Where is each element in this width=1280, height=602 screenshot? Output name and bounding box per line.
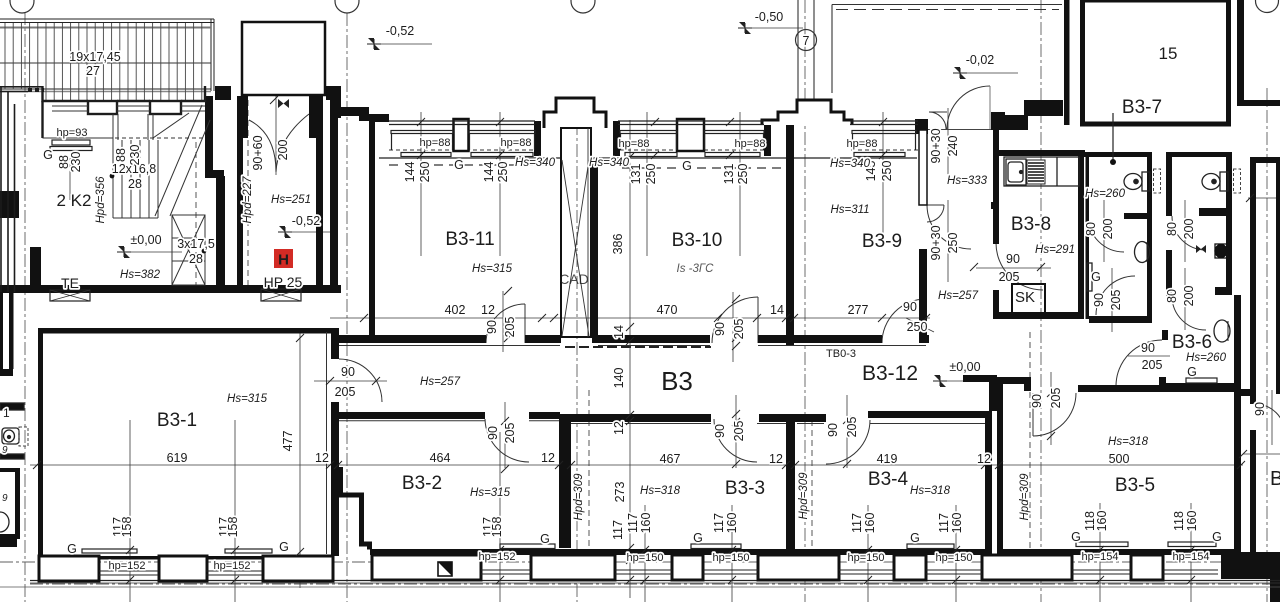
svg-text:205: 205: [1142, 358, 1163, 372]
svg-text:TB0-3: TB0-3: [826, 348, 856, 360]
svg-text:H: H: [278, 252, 289, 269]
svg-text:-0,52: -0,52: [292, 214, 321, 228]
svg-text:28: 28: [128, 177, 142, 191]
svg-text:250: 250: [946, 233, 960, 254]
svg-text:hp=93: hp=93: [57, 127, 88, 139]
svg-text:12: 12: [612, 421, 626, 435]
svg-text:90: 90: [1006, 252, 1020, 266]
svg-text:±0,00: ±0,00: [130, 233, 161, 247]
svg-text:12: 12: [541, 451, 555, 465]
svg-text:B3-7: B3-7: [1122, 97, 1162, 118]
svg-text:250: 250: [907, 320, 928, 334]
svg-text:hp=88: hp=88: [501, 137, 532, 149]
svg-text:9: 9: [2, 493, 8, 504]
svg-text:Hpd=309: Hpd=309: [798, 472, 810, 520]
svg-text:402: 402: [445, 303, 466, 317]
svg-text:14: 14: [770, 303, 784, 317]
svg-text:Hs=333: Hs=333: [947, 175, 988, 187]
svg-text:277: 277: [848, 303, 869, 317]
svg-text:hp=152: hp=152: [213, 560, 250, 572]
svg-text:12: 12: [977, 452, 991, 466]
svg-text:90: 90: [486, 426, 500, 440]
svg-text:273: 273: [613, 482, 627, 503]
svg-text:12: 12: [769, 452, 783, 466]
svg-text:B3: B3: [661, 366, 693, 396]
svg-text:Hs=318: Hs=318: [910, 485, 951, 497]
svg-text:230: 230: [69, 152, 83, 173]
svg-text:205: 205: [1049, 388, 1063, 409]
svg-text:90+30: 90+30: [929, 225, 943, 260]
svg-text:hp=88: hp=88: [619, 138, 650, 150]
svg-text:B3-10: B3-10: [672, 230, 723, 251]
svg-text:90: 90: [713, 424, 727, 438]
svg-text:160: 160: [1185, 511, 1199, 532]
svg-text:90: 90: [826, 423, 840, 437]
svg-text:Hpd=309: Hpd=309: [1019, 473, 1031, 521]
svg-text:250: 250: [644, 164, 658, 185]
svg-text:Hs=315: Hs=315: [470, 487, 511, 499]
svg-text:Hs=260: Hs=260: [1085, 188, 1126, 200]
svg-text:117: 117: [611, 520, 625, 540]
svg-text:200: 200: [1101, 219, 1115, 240]
svg-text:467: 467: [660, 452, 681, 466]
svg-text:250: 250: [496, 162, 510, 183]
svg-text:15: 15: [1159, 44, 1178, 63]
svg-text:205: 205: [1109, 290, 1123, 311]
svg-text:205: 205: [732, 319, 746, 340]
svg-text:hp=154: hp=154: [1081, 551, 1118, 563]
svg-text:B3-9: B3-9: [862, 231, 902, 252]
svg-text:±0,00: ±0,00: [949, 360, 980, 374]
svg-text:Hs=318: Hs=318: [1108, 436, 1149, 448]
svg-text:27: 27: [86, 64, 100, 78]
svg-text:B3-4: B3-4: [868, 469, 909, 490]
svg-text:B3-1: B3-1: [157, 410, 197, 431]
svg-text:117: 117: [850, 513, 864, 533]
svg-text:12: 12: [315, 451, 329, 465]
svg-text:144: 144: [482, 162, 496, 183]
svg-text:Hpd=227: Hpd=227: [242, 176, 254, 224]
svg-text:90: 90: [341, 365, 355, 379]
svg-text:14: 14: [612, 325, 626, 339]
svg-text:Hs=382: Hs=382: [120, 269, 161, 281]
svg-text:9: 9: [2, 445, 8, 456]
svg-text:131: 131: [722, 164, 736, 185]
svg-text:Hs=340: Hs=340: [830, 158, 871, 170]
svg-text:HP 25: HP 25: [264, 274, 303, 290]
svg-text:-0,52: -0,52: [386, 24, 415, 38]
svg-text:131: 131: [629, 164, 643, 185]
svg-text:200: 200: [276, 140, 290, 161]
svg-text:90: 90: [1141, 341, 1155, 355]
svg-text:80: 80: [1165, 289, 1179, 303]
svg-text:470: 470: [657, 303, 678, 317]
svg-text:Hs=291: Hs=291: [1035, 244, 1075, 256]
svg-text:hp=152: hp=152: [478, 551, 515, 563]
svg-text:90+30: 90+30: [929, 128, 943, 163]
svg-text:205: 205: [732, 421, 746, 442]
svg-text:205: 205: [503, 317, 517, 338]
svg-text:hp=88: hp=88: [847, 138, 878, 150]
svg-text:12: 12: [481, 303, 495, 317]
svg-text:G: G: [1187, 365, 1197, 379]
svg-text:Is -3ГC: Is -3ГC: [677, 263, 715, 275]
svg-text:160: 160: [863, 513, 877, 534]
svg-text:205: 205: [503, 423, 517, 444]
svg-text:CАD: CАD: [559, 271, 589, 287]
svg-text:619: 619: [167, 451, 188, 465]
svg-text:90: 90: [713, 322, 727, 336]
svg-text:90: 90: [1253, 402, 1267, 416]
svg-text:200: 200: [1182, 219, 1196, 240]
svg-text:hp=150: hp=150: [847, 552, 884, 564]
svg-text:Hs=315: Hs=315: [472, 263, 513, 275]
svg-text:117: 117: [712, 513, 726, 533]
svg-text:B3-8: B3-8: [1011, 214, 1051, 235]
svg-text:B3-3: B3-3: [725, 478, 765, 499]
svg-text:TE: TE: [61, 275, 79, 291]
svg-text:hp=154: hp=154: [1172, 551, 1209, 563]
svg-text:2 K2: 2 K2: [57, 191, 92, 210]
svg-text:1: 1: [3, 406, 10, 420]
svg-text:hp=150: hp=150: [935, 552, 972, 564]
svg-text:205: 205: [335, 385, 356, 399]
svg-text:G: G: [43, 148, 53, 162]
svg-text:B3-5: B3-5: [1115, 475, 1155, 496]
svg-text:80: 80: [1165, 222, 1179, 236]
svg-text:7: 7: [803, 34, 810, 48]
svg-text:250: 250: [880, 161, 894, 182]
svg-text:-0,02: -0,02: [966, 53, 995, 67]
svg-text:90+60: 90+60: [251, 135, 265, 170]
svg-text:464: 464: [430, 451, 451, 465]
svg-text:Hs=251: Hs=251: [271, 194, 311, 206]
svg-text:477: 477: [281, 431, 295, 452]
svg-text:hp=88: hp=88: [735, 138, 766, 150]
svg-text:160: 160: [950, 513, 964, 534]
svg-text:B3-2: B3-2: [402, 473, 442, 494]
svg-text:-0,50: -0,50: [755, 10, 784, 24]
svg-text:G: G: [67, 542, 77, 556]
svg-text:205: 205: [845, 417, 859, 438]
svg-text:G: G: [1071, 530, 1081, 544]
svg-text:90: 90: [903, 300, 917, 314]
svg-text:G: G: [910, 531, 920, 545]
svg-text:G: G: [1212, 530, 1222, 544]
svg-text:G: G: [540, 532, 550, 546]
svg-text:hp=150: hp=150: [626, 552, 663, 564]
svg-text:28: 28: [189, 252, 203, 266]
svg-text:90: 90: [1030, 394, 1044, 408]
svg-text:240: 240: [946, 136, 960, 157]
svg-text:Hs=340: Hs=340: [589, 157, 630, 169]
svg-text:500: 500: [1109, 452, 1130, 466]
svg-text:90: 90: [1092, 293, 1106, 307]
svg-text:90: 90: [485, 320, 499, 334]
svg-text:hp=152: hp=152: [108, 560, 145, 572]
svg-text:419: 419: [877, 452, 898, 466]
svg-text:19x17,45: 19x17,45: [69, 50, 120, 64]
svg-text:200: 200: [1182, 286, 1196, 307]
svg-text:250: 250: [736, 164, 750, 185]
svg-text:G: G: [682, 159, 692, 173]
svg-text:Hs=311: Hs=311: [830, 204, 869, 216]
svg-text:230: 230: [128, 145, 142, 166]
svg-text:117: 117: [626, 513, 640, 533]
svg-text:Hs=257: Hs=257: [420, 376, 461, 388]
svg-text:160: 160: [639, 513, 653, 534]
svg-text:Hpd=309: Hpd=309: [573, 473, 585, 521]
svg-text:158: 158: [120, 517, 134, 538]
svg-text:B3-11: B3-11: [445, 229, 494, 250]
svg-text:250: 250: [418, 162, 432, 183]
svg-text:158: 158: [226, 517, 240, 538]
svg-text:B: B: [1270, 468, 1280, 490]
svg-text:158: 158: [490, 517, 504, 538]
svg-text:386: 386: [611, 234, 625, 255]
svg-text:G: G: [454, 158, 464, 172]
svg-text:160: 160: [725, 513, 739, 534]
svg-text:B3-12: B3-12: [862, 362, 918, 385]
svg-text:118: 118: [1172, 511, 1186, 531]
svg-text:3x17,5: 3x17,5: [177, 237, 215, 251]
svg-text:hp=150: hp=150: [712, 552, 749, 564]
svg-text:140: 140: [612, 368, 626, 389]
svg-text:117: 117: [937, 513, 951, 533]
svg-text:G: G: [1091, 270, 1101, 284]
svg-text:80: 80: [1084, 222, 1098, 236]
svg-text:G: G: [279, 540, 289, 554]
svg-text:160: 160: [1095, 511, 1109, 532]
svg-text:Hs=315: Hs=315: [227, 393, 268, 405]
svg-text:Hs=260: Hs=260: [1186, 352, 1227, 364]
svg-text:B3-6: B3-6: [1172, 332, 1212, 353]
svg-text:Hs=340: Hs=340: [515, 157, 556, 169]
svg-text:205: 205: [999, 270, 1020, 284]
svg-text:G: G: [693, 531, 703, 545]
svg-text:88: 88: [114, 148, 128, 162]
svg-text:144: 144: [403, 162, 417, 183]
svg-text:SK: SK: [1015, 289, 1035, 306]
svg-text:Hs=257: Hs=257: [938, 290, 979, 302]
svg-text:Hpd=356: Hpd=356: [95, 176, 107, 224]
svg-text:Hs=318: Hs=318: [640, 485, 681, 497]
svg-text:hp=88: hp=88: [420, 137, 451, 149]
